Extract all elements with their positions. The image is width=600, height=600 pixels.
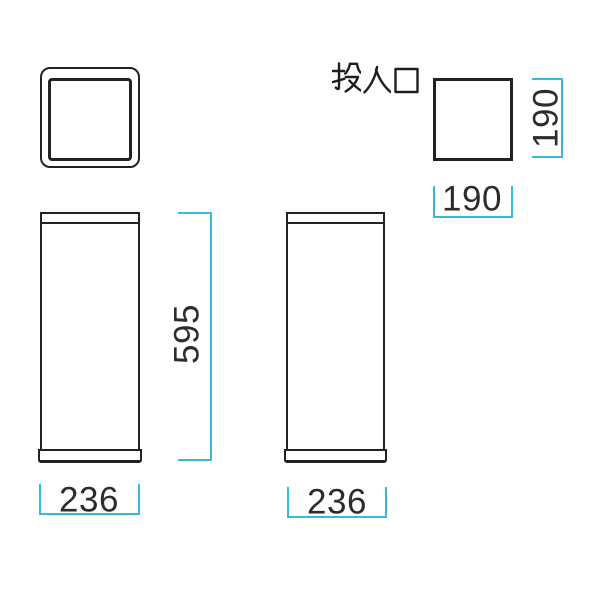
side-view-body <box>286 212 385 449</box>
kanji-kou-icon <box>392 61 421 95</box>
slot-height-dimension-value: 190 <box>529 88 564 148</box>
front-width-dimension-value: 236 <box>59 483 119 518</box>
side-view-base <box>284 449 387 463</box>
front-view-base <box>38 449 142 463</box>
slot-view-square <box>433 78 513 161</box>
side-view-lid-line <box>288 222 383 224</box>
side-width-dimension-value: 236 <box>307 485 367 520</box>
front-view-lid-line <box>42 222 138 224</box>
kanji-nyuu-icon <box>362 61 391 95</box>
kanji-tou-icon <box>332 61 361 95</box>
slot-width-dimension-value: 190 <box>442 182 502 217</box>
top-view-opening <box>48 78 132 161</box>
insertion-opening-label: 投入口 <box>332 61 421 95</box>
overall-height-dimension-value: 595 <box>170 304 205 364</box>
front-view-body <box>40 212 140 449</box>
dimension-drawing: 投入口 190 190 595 236 <box>0 0 600 600</box>
